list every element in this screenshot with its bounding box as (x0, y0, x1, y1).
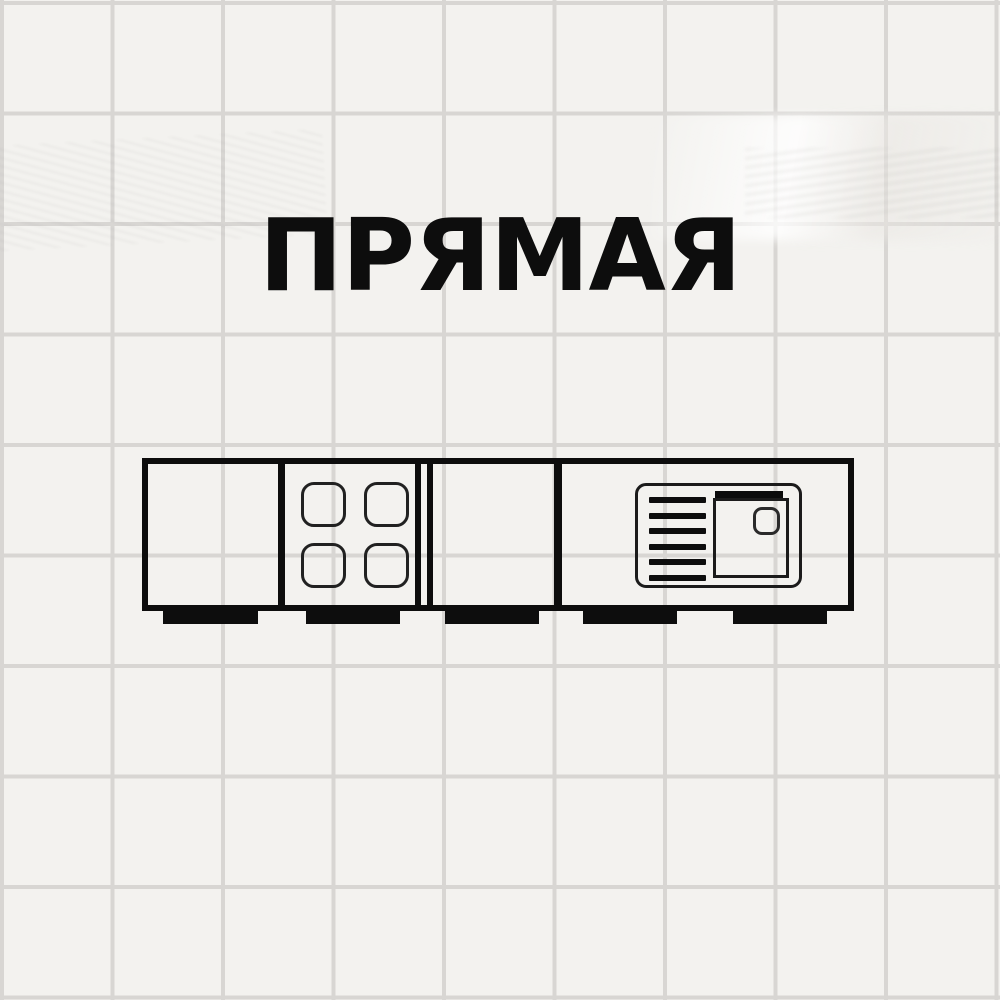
drainer-line (649, 559, 706, 565)
cooktop-icon (301, 482, 409, 588)
drainer-line (649, 544, 706, 550)
burner-icon (301, 543, 346, 588)
drainer-line (649, 575, 706, 581)
cabinet-foot (733, 611, 827, 624)
cabinet-divider (554, 461, 562, 608)
kitchen-layout-diagram (0, 0, 1000, 1000)
cabinet-divider (278, 461, 285, 608)
drainer-lines (649, 497, 706, 581)
cabinet-foot (583, 611, 677, 624)
cabinet-foot (445, 611, 539, 624)
drain-icon (753, 507, 780, 535)
cabinet-divider (415, 461, 421, 608)
drainer-line (649, 497, 706, 503)
cabinet-divider (427, 461, 433, 608)
drainer-line (649, 528, 706, 534)
cabinet-foot (163, 611, 258, 624)
burner-icon (364, 543, 409, 588)
cabinet-foot (306, 611, 400, 624)
burner-icon (301, 482, 346, 527)
sink-basin-edge (715, 491, 783, 498)
burner-icon (364, 482, 409, 527)
paper-background: ПРЯМАЯ (0, 0, 1000, 1000)
drainer-line (649, 513, 706, 519)
